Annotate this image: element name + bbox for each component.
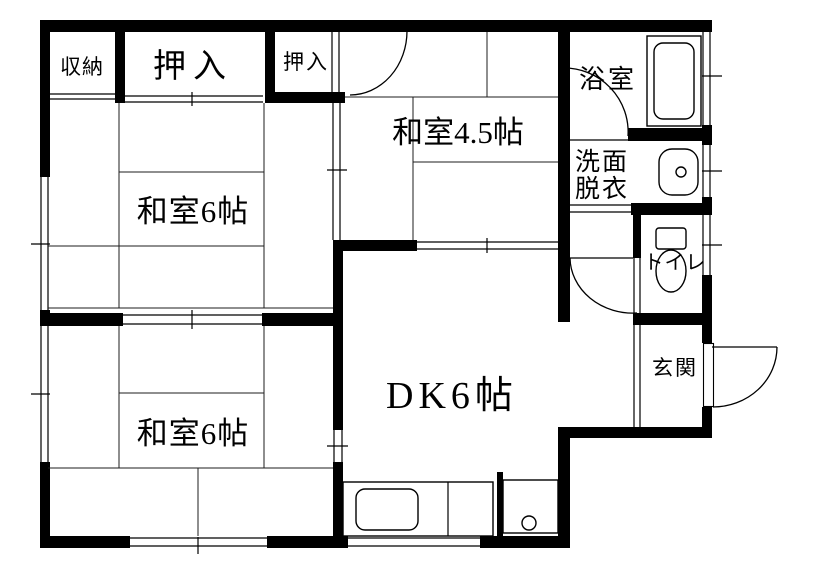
entrance-step-edge — [634, 325, 640, 427]
closet-small-label: 押入 — [283, 50, 329, 74]
floor-plan-canvas: 収納 押入 押入 和室6帖 和室4.5帖 和室6帖 DK6帖 浴室 洗面 脱衣 … — [0, 0, 814, 575]
kitchen-side-unit — [503, 480, 558, 533]
window-kitchen — [348, 538, 480, 546]
closet-sliding-door — [125, 92, 263, 106]
japanese-room-upper-label: 和室6帖 — [137, 194, 250, 229]
japanese-room-45-label: 和室4.5帖 — [392, 115, 524, 150]
fusuma-between-rooms — [123, 310, 262, 329]
fusuma-upper-room — [327, 103, 347, 240]
window-left-lower — [31, 326, 50, 462]
toilet-door-swing — [570, 258, 637, 313]
sliding-door-45-dk — [417, 238, 558, 253]
bathroom-label: 浴室 — [579, 65, 637, 94]
window-left-upper — [31, 177, 50, 310]
entrance-door-swing — [704, 344, 778, 408]
storage-label: 収納 — [60, 55, 104, 79]
closet-main-label: 押入 — [153, 48, 233, 85]
window-washroom — [702, 145, 722, 197]
washroom-label-line1: 洗面 — [575, 148, 629, 176]
entrance-label: 玄関 — [652, 356, 698, 380]
sliding-door-lower-room-dk — [327, 430, 348, 462]
burner-icon — [522, 516, 536, 530]
window-bathroom — [702, 32, 722, 125]
small-closet-door — [332, 31, 339, 92]
bathtub-icon — [647, 36, 701, 126]
toilet-label: トイレ — [644, 252, 707, 274]
washroom-door-opening — [570, 205, 631, 212]
kitchen-counter — [343, 482, 493, 536]
dining-kitchen-label: DK6帖 — [386, 375, 518, 417]
washroom-label-line2: 脱衣 — [575, 175, 629, 203]
toilet-doorway — [634, 258, 640, 313]
japanese-room-lower-label: 和室6帖 — [137, 416, 250, 451]
wash-basin-icon — [659, 149, 698, 195]
floor-plan: 収納 押入 押入 和室6帖 和室4.5帖 和室6帖 DK6帖 浴室 洗面 脱衣 … — [0, 0, 814, 575]
kitchen-sink-icon — [356, 489, 418, 530]
small-closet-door-swing — [350, 31, 407, 95]
storage-opening — [50, 94, 115, 99]
window-bottom-left — [130, 537, 267, 554]
walls — [40, 20, 712, 548]
